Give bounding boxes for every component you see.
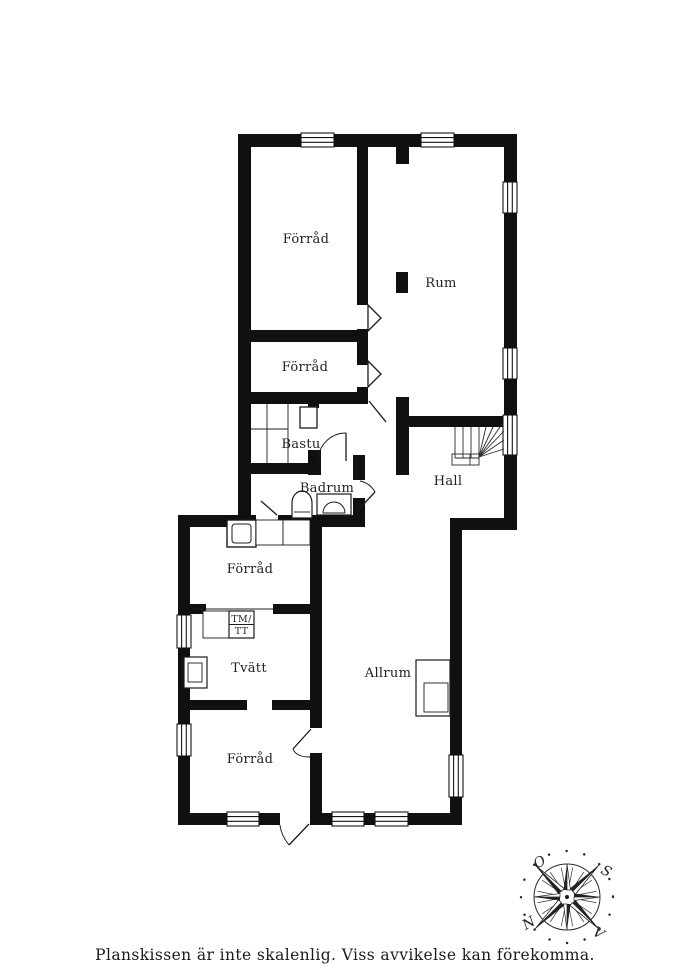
door-leaf bbox=[293, 729, 311, 757]
window bbox=[503, 182, 517, 213]
floor-plan-page: Förråd Rum Förråd Bastu Badrum Hall Förr… bbox=[0, 0, 690, 976]
wall bbox=[310, 515, 322, 728]
room-label-badrum: Badrum bbox=[300, 481, 354, 496]
window bbox=[301, 133, 334, 147]
washer-label: TM/ bbox=[231, 614, 252, 625]
door-leaf bbox=[368, 305, 381, 331]
sauna-benches bbox=[251, 404, 288, 463]
wall bbox=[178, 700, 247, 710]
wall bbox=[409, 416, 504, 427]
wall bbox=[357, 329, 368, 365]
counter bbox=[283, 520, 310, 545]
wall bbox=[310, 753, 322, 813]
room-label-forrad-left: Förråd bbox=[227, 561, 273, 577]
floor-plan: Förråd Rum Förråd Bastu Badrum Hall Förr… bbox=[0, 0, 690, 976]
windows bbox=[177, 133, 517, 826]
wall bbox=[353, 455, 365, 480]
wall bbox=[353, 498, 365, 515]
room-label-allrum: Allrum bbox=[364, 666, 411, 681]
room-label-forrad-bottom: Förråd bbox=[227, 751, 273, 767]
fireplace-icon bbox=[416, 660, 450, 716]
room-label-rum: Rum bbox=[425, 276, 456, 291]
wall-chimney bbox=[396, 272, 408, 293]
window bbox=[503, 415, 517, 455]
wall bbox=[396, 147, 409, 164]
window bbox=[177, 615, 191, 648]
walls bbox=[178, 134, 517, 825]
wall bbox=[238, 134, 517, 147]
door-opening bbox=[280, 812, 310, 826]
wall bbox=[308, 392, 319, 408]
door-leaf bbox=[368, 361, 381, 387]
window bbox=[332, 812, 364, 826]
window bbox=[503, 348, 517, 379]
window bbox=[227, 812, 259, 826]
wall bbox=[251, 330, 357, 342]
door-leaf bbox=[280, 824, 309, 845]
window bbox=[375, 812, 408, 826]
counter bbox=[256, 520, 283, 545]
doors bbox=[261, 305, 386, 845]
compass-east-label: O bbox=[531, 853, 550, 873]
window bbox=[449, 755, 463, 797]
compass-west-label: V bbox=[590, 924, 609, 944]
door-leaf bbox=[261, 501, 277, 515]
compass-rose: O S N V bbox=[519, 851, 614, 944]
appliance-icon bbox=[184, 657, 207, 688]
wall bbox=[273, 604, 322, 614]
disclaimer-caption: Planskissen är inte skalenlig. Viss avvi… bbox=[95, 946, 595, 964]
room-label-bastu: Bastu bbox=[281, 437, 320, 452]
window bbox=[177, 724, 191, 756]
stairs bbox=[452, 427, 504, 465]
compass-center bbox=[565, 895, 569, 899]
compass-south-label: S bbox=[598, 862, 614, 881]
window bbox=[421, 133, 454, 147]
room-label-tvatt: Tvätt bbox=[231, 661, 267, 676]
sauna-heater-icon bbox=[300, 407, 317, 428]
door-leaf bbox=[318, 433, 346, 461]
room-label-hall: Hall bbox=[434, 474, 463, 489]
compass-north-label: N bbox=[519, 913, 539, 934]
door-leaf bbox=[369, 401, 386, 422]
wall bbox=[396, 397, 409, 475]
wall bbox=[251, 463, 311, 474]
room-label-forrad-mid: Förråd bbox=[282, 359, 328, 375]
room-label-forrad-top: Förråd bbox=[283, 231, 329, 247]
washbasin-icon bbox=[317, 494, 351, 515]
wall bbox=[238, 134, 251, 527]
sink-icon bbox=[227, 520, 256, 547]
counter bbox=[203, 611, 229, 638]
wall bbox=[455, 518, 517, 530]
dryer-label: TT bbox=[235, 626, 249, 637]
wall bbox=[357, 147, 368, 305]
wall bbox=[178, 813, 462, 825]
wall bbox=[272, 700, 322, 710]
